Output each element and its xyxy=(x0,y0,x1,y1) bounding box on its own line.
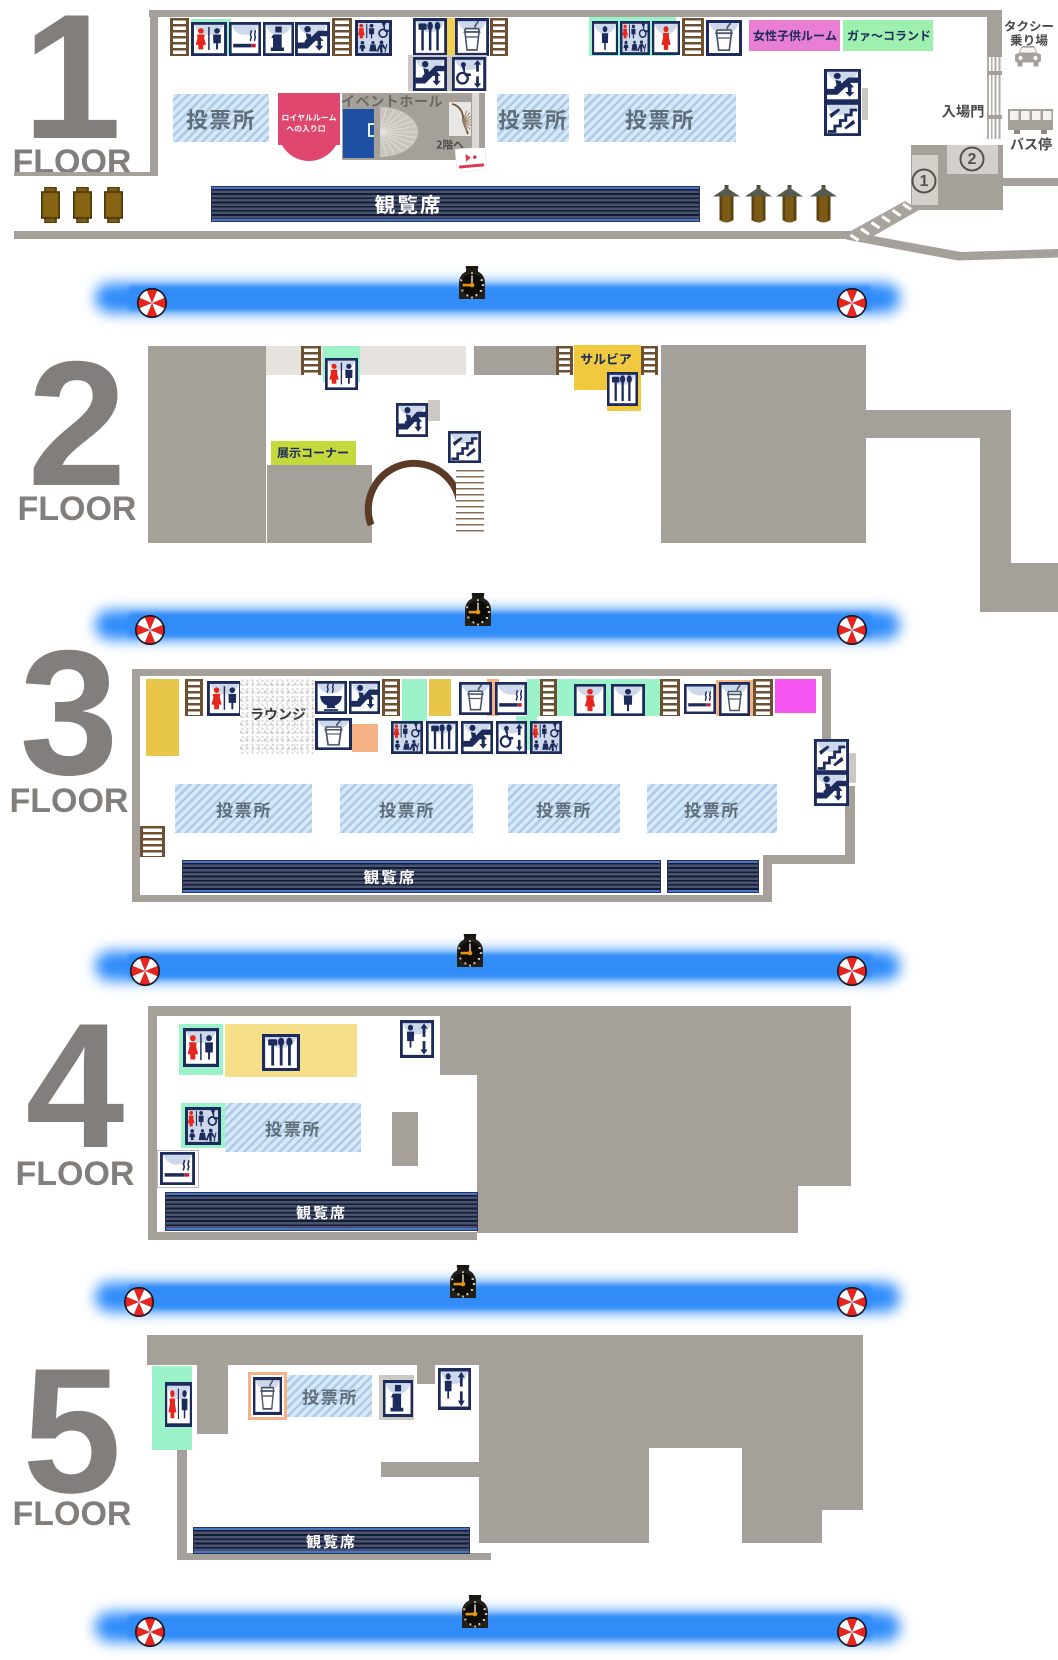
svg-text:1: 1 xyxy=(920,173,929,190)
svg-text:2: 2 xyxy=(968,151,977,168)
